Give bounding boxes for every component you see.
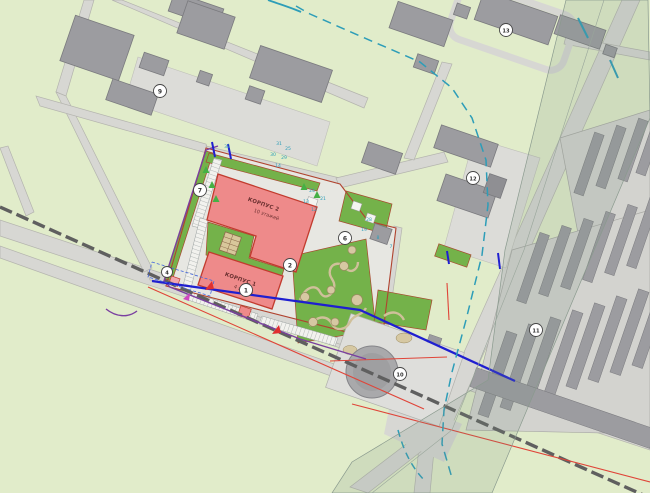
utility-label-19: 19 [361, 227, 367, 233]
callout-2: 2 [288, 263, 292, 270]
utility-label-21: 21 [320, 196, 326, 202]
utility-label-32: 32 [224, 144, 230, 150]
site-plan-canvas: КОРПУС 2 10 этажей КОРПУС 1 4 этажа 32 3… [0, 0, 650, 493]
callout-4: 4 [165, 270, 169, 276]
utility-label-24: 24 [309, 188, 315, 194]
utility-label-7: 7 [390, 244, 393, 250]
utility-label-28: 28 [366, 217, 372, 223]
utility-label-25: 25 [285, 146, 291, 152]
site-plan: КОРПУС 2 10 этажей КОРПУС 1 4 этажа 32 3… [0, 0, 650, 493]
callout-13: 13 [502, 28, 510, 34]
utility-label-13: 13 [303, 199, 309, 205]
plaza-planter-2 [396, 333, 412, 343]
callout-10: 10 [396, 372, 404, 378]
utility-label-12: 12 [311, 207, 317, 213]
callout-9: 9 [158, 89, 162, 96]
callout-6: 6 [343, 236, 347, 243]
callout-1: 1 [244, 288, 248, 295]
utility-label-8: 8 [377, 235, 380, 241]
callout-11: 11 [532, 328, 540, 334]
utility-label-14: 14 [275, 163, 281, 169]
callout-7: 7 [198, 188, 202, 195]
utility-label-29: 29 [281, 155, 287, 161]
utility-label-30: 30 [270, 152, 276, 158]
utility-label-31: 31 [276, 141, 282, 147]
callout-12: 12 [469, 176, 477, 182]
